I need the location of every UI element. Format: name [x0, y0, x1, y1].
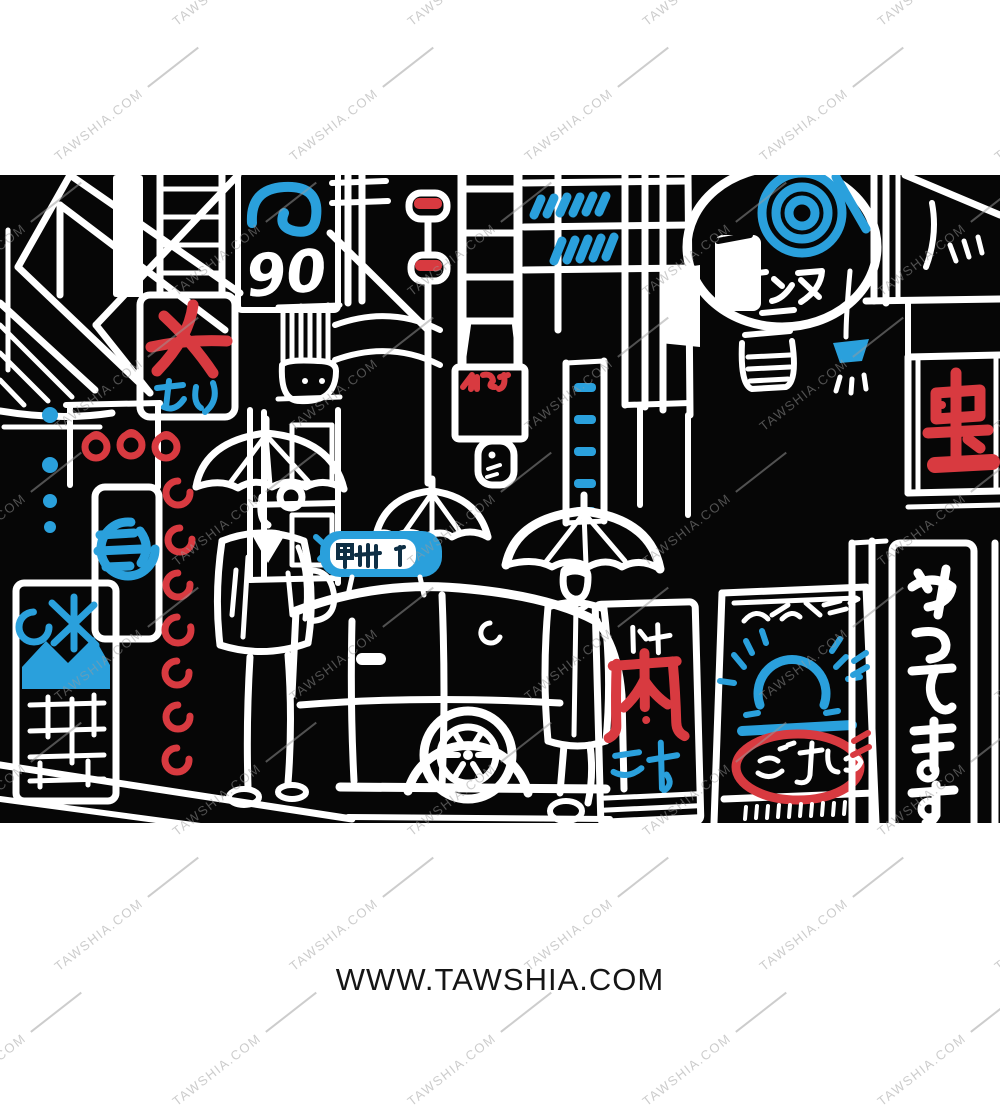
product-image: 90	[0, 0, 1000, 1000]
watermark: TAWSHIA.COM	[756, 851, 907, 974]
door-handle	[356, 653, 386, 665]
kana-yattemasu	[912, 569, 954, 823]
blue-squiggle	[252, 187, 317, 232]
watermark: TAWSHIA.COM	[404, 0, 555, 29]
watermark: TAWSHIA.COM	[991, 41, 1000, 164]
umbrella-icon-small	[376, 479, 488, 537]
kanji-niku	[606, 652, 684, 738]
ladder-sign-left	[160, 175, 222, 293]
watermark: TAWSHIA.COM	[991, 851, 1000, 974]
pole-red-clamps	[409, 193, 447, 483]
watermark: TAWSHIA.COM	[0, 986, 86, 1109]
watermark: TAWSHIA.COM	[286, 851, 437, 974]
bell-lamp	[742, 331, 794, 389]
blue-radio-glyph	[98, 522, 155, 576]
crescent-mark	[481, 623, 500, 643]
umbrella-icon-1	[196, 419, 344, 489]
shoe	[278, 785, 306, 799]
watermark: TAWSHIA.COM	[521, 41, 672, 164]
blue-sun-doodle	[720, 631, 860, 731]
umbrella-icon-2	[506, 495, 660, 569]
watermark: TAWSHIA.COM	[51, 41, 202, 164]
watermark: TAWSHIA.COM	[169, 986, 320, 1109]
sign-90-number: 90	[243, 236, 329, 311]
watermark: TAWSHIA.COM	[169, 0, 320, 29]
board-hatching	[745, 802, 845, 819]
white-pillar	[113, 175, 143, 297]
watermark: TAWSHIA.COM	[286, 41, 437, 164]
shutter-and-face	[278, 305, 340, 401]
watermark: TAWSHIA.COM	[874, 986, 1000, 1109]
red-scribble	[463, 375, 508, 389]
red-lantern-column	[165, 481, 192, 772]
watermark: TAWSHIA.COM	[639, 986, 790, 1109]
wheel	[424, 711, 512, 799]
watermark: TAWSHIA.COM	[404, 986, 555, 1109]
red-kanji-sign	[908, 355, 1000, 507]
vertical-banner	[892, 543, 995, 823]
watermark: TAWSHIA.COM	[0, 0, 86, 29]
radio-sign	[95, 487, 159, 639]
woman-kanji-sign	[140, 295, 235, 417]
kanji-mushi	[928, 373, 992, 465]
leg	[247, 657, 250, 787]
tomato-lanterns	[85, 432, 177, 459]
hair-bun	[280, 486, 302, 508]
red-oval	[736, 734, 860, 800]
kanji-onna	[151, 305, 227, 373]
sign-90: 90	[238, 175, 338, 311]
house-right	[866, 175, 1000, 357]
watermark: TAWSHIA.COM	[51, 851, 202, 974]
building-floors	[524, 175, 692, 515]
pedestrian-1	[196, 419, 344, 805]
blue-dot-column	[42, 403, 160, 533]
watermark: TAWSHIA.COM	[639, 0, 790, 29]
watermark: TAWSHIA.COM	[874, 0, 1000, 29]
watermark: TAWSHIA.COM	[521, 851, 672, 974]
blue-kana-ari	[157, 381, 215, 412]
watermark: TAWSHIA.COM	[756, 41, 907, 164]
footer-url: WWW.TAWSHIA.COM	[0, 962, 1000, 998]
street-illustration: 90	[0, 175, 1000, 823]
